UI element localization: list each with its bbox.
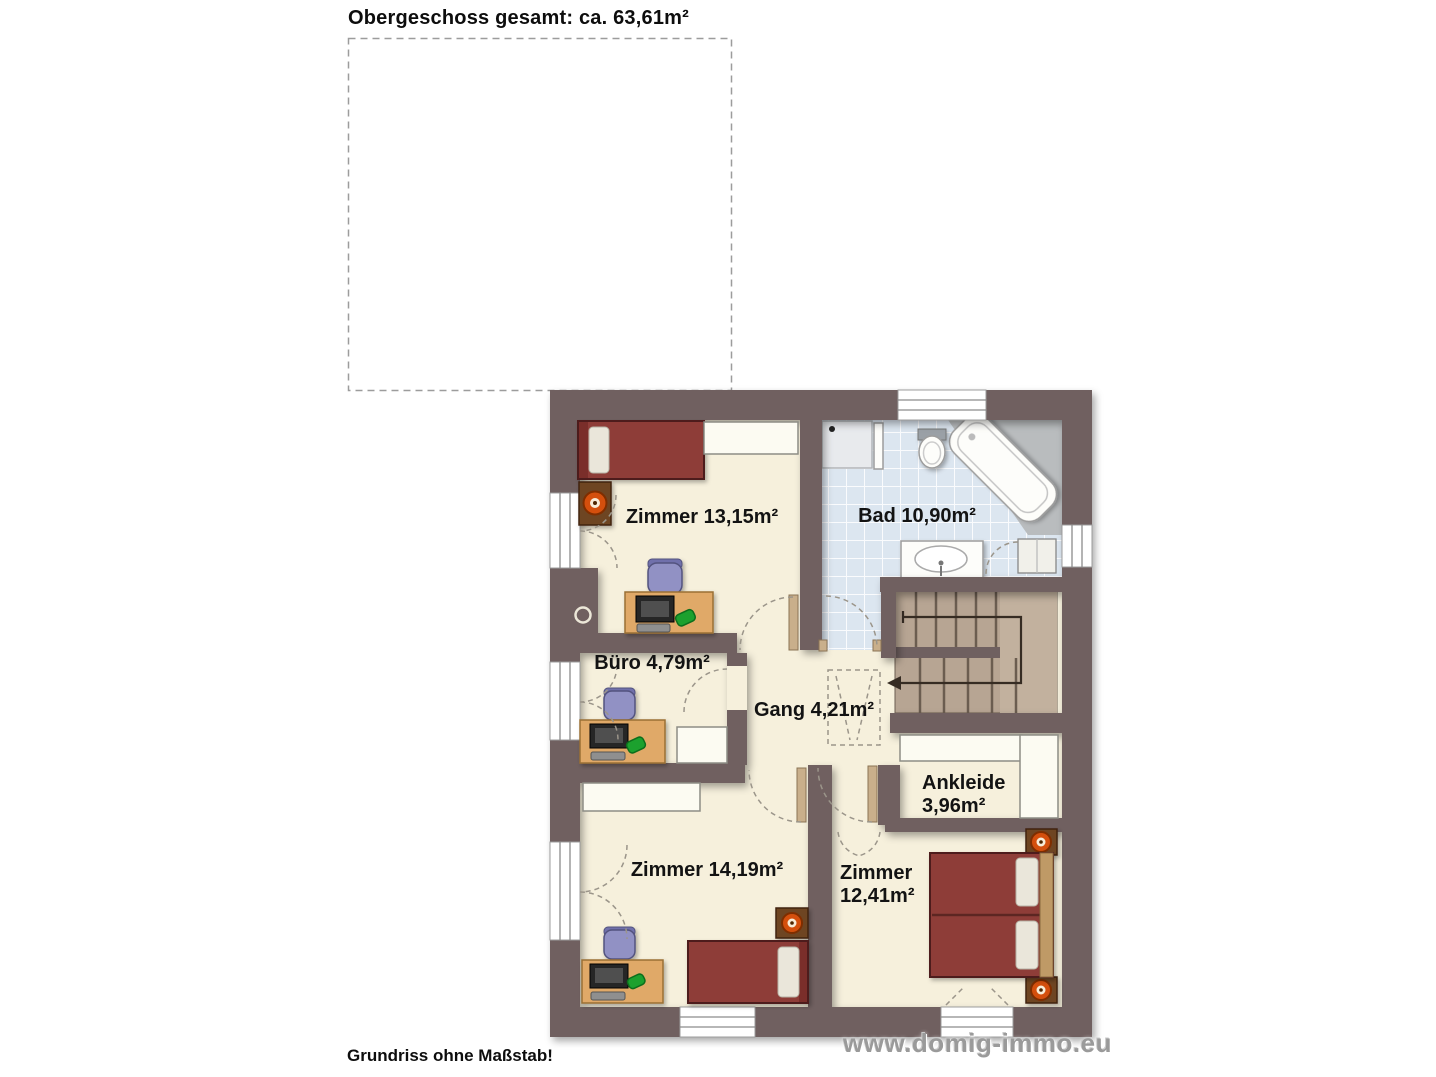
office-sideboard-icon: [677, 727, 727, 763]
wall-bedroom-bath: [800, 420, 822, 650]
staircase: [881, 588, 1057, 713]
door-leaf: [797, 768, 806, 822]
wardrobe-icon: [704, 422, 798, 454]
bathroom-door-floor: [822, 577, 881, 650]
sink-icon: [901, 541, 983, 581]
bath-divider: [874, 423, 883, 469]
wall-stairs-left: [881, 583, 896, 658]
toilet-icon: [918, 429, 946, 468]
nightstand-icon: [776, 908, 808, 938]
floorplan-svg: Zimmer 13,15m² Bad 10,90m² Büro 4,79m² G…: [0, 0, 1436, 1077]
room-label-zimmer-bottom-right-area: 12,41m²: [840, 885, 915, 907]
watermark: www.domig-immo.eu: [843, 1028, 1112, 1059]
keyboard-icon: [591, 752, 625, 760]
wall-top: [550, 390, 1092, 420]
room-label-ankleide: Ankleide: [922, 772, 1005, 794]
door-leaf: [789, 595, 798, 650]
window-top: [898, 390, 986, 420]
wardrobe-icon: [583, 783, 700, 811]
shower-icon: [822, 421, 872, 468]
door-leaf: [868, 766, 877, 822]
wall-stairs-ankleide: [890, 713, 1062, 733]
ankleide-wardrobe-icon: [1020, 735, 1058, 818]
window-bottom-1: [680, 1007, 755, 1037]
nightstand-icon: [579, 482, 611, 525]
window-left-1: [550, 493, 580, 568]
bed-icon: [688, 941, 808, 1003]
stairs-flight-divider: [881, 647, 1000, 658]
window-right: [1062, 525, 1092, 567]
bed-icon: [578, 421, 704, 479]
wall-bedroom-office: [580, 633, 737, 653]
double-bed-icon: [930, 853, 1053, 977]
footer-note: Grundriss ohne Maßstab!: [347, 1046, 553, 1066]
room-label-gang: Gang 4,21m²: [754, 699, 874, 721]
office-door-opening: [727, 666, 747, 710]
keyboard-icon: [591, 992, 625, 1000]
nightstand-icon: [1026, 829, 1057, 855]
window-left-3: [550, 842, 580, 940]
wall-bath-stairs: [880, 577, 1062, 592]
room-label-bad: Bad 10,90m²: [858, 505, 976, 527]
room-label-buero: Büro 4,79m²: [594, 652, 710, 674]
door-jamb: [819, 640, 827, 651]
ankleide-wardrobe-icon: [900, 735, 1022, 761]
wall-right: [1062, 390, 1092, 1037]
stairs-landing: [1000, 588, 1057, 713]
room-label-ankleide-area: 3,96m²: [922, 795, 986, 817]
keyboard-icon: [637, 624, 670, 632]
room-label-zimmer-top: Zimmer 13,15m²: [626, 506, 779, 528]
window-left-2: [550, 662, 580, 740]
room-label-zimmer-bottom-right: Zimmer: [840, 862, 912, 884]
nightstand-icon: [1026, 977, 1057, 1003]
wall-ankleide-left: [878, 765, 900, 825]
wall-office-bottom: [550, 763, 745, 783]
upper-floor-outline: [349, 39, 732, 391]
wall-bedrooms-divider: [808, 765, 832, 1007]
room-label-zimmer-bottom-left: Zimmer 14,19m²: [631, 859, 784, 881]
